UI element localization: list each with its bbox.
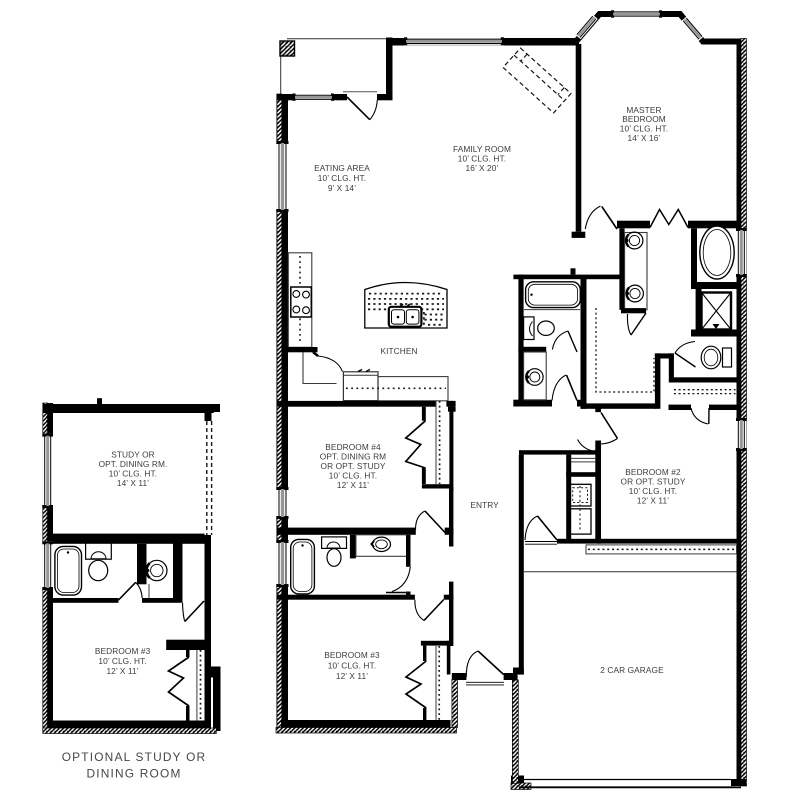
svg-text:10’ CLG. HT.: 10’ CLG. HT. — [629, 486, 677, 496]
svg-text:BEDROOM #4: BEDROOM #4 — [325, 442, 381, 452]
svg-text:STUDY OR: STUDY OR — [111, 449, 155, 459]
svg-text:10’ CLG. HT.: 10’ CLG. HT. — [98, 656, 146, 666]
svg-text:OPT. DINING RM.: OPT. DINING RM. — [99, 459, 168, 469]
svg-text:12’ X 11’: 12’ X 11’ — [637, 495, 669, 505]
svg-text:14’ X 11’: 14’ X 11’ — [117, 478, 149, 488]
svg-text:16’ X 20’: 16’ X 20’ — [466, 163, 499, 173]
svg-text:KITCHEN: KITCHEN — [380, 346, 417, 356]
svg-text:OPTIONAL STUDY OR: OPTIONAL STUDY OR — [62, 750, 207, 764]
svg-text:BEDROOM #3: BEDROOM #3 — [324, 650, 380, 660]
svg-text:OR OPT. STUDY: OR OPT. STUDY — [621, 476, 686, 486]
svg-text:12’ X 11’: 12’ X 11’ — [106, 666, 138, 676]
svg-text:EATING AREA: EATING AREA — [314, 163, 370, 173]
svg-text:OR OPT. STUDY: OR OPT. STUDY — [321, 461, 386, 471]
svg-text:14’ X 16’: 14’ X 16’ — [628, 133, 661, 143]
svg-text:12’ X 11’: 12’ X 11’ — [336, 671, 368, 681]
svg-text:10’ CLG. HT.: 10’ CLG. HT. — [329, 470, 377, 480]
svg-text:ENTRY: ENTRY — [470, 500, 499, 510]
svg-text:10’ CLG. HT.: 10’ CLG. HT. — [328, 660, 376, 670]
svg-text:BEDROOM #2: BEDROOM #2 — [625, 467, 681, 477]
svg-text:12’ X 11’: 12’ X 11’ — [337, 480, 369, 490]
svg-text:10’ CLG. HT.: 10’ CLG. HT. — [109, 468, 157, 478]
svg-text:9’ X 14’: 9’ X 14’ — [328, 183, 356, 193]
svg-text:FAMILY ROOM: FAMILY ROOM — [453, 144, 511, 154]
svg-text:2 CAR GARAGE: 2 CAR GARAGE — [600, 665, 664, 675]
svg-text:DINING ROOM: DINING ROOM — [86, 767, 181, 781]
svg-text:10’ CLG. HT.: 10’ CLG. HT. — [318, 173, 366, 183]
svg-text:10’ CLG. HT.: 10’ CLG. HT. — [458, 153, 506, 163]
svg-text:BEDROOM #3: BEDROOM #3 — [95, 646, 151, 656]
svg-text:OPT. DINING RM: OPT. DINING RM — [320, 451, 386, 461]
